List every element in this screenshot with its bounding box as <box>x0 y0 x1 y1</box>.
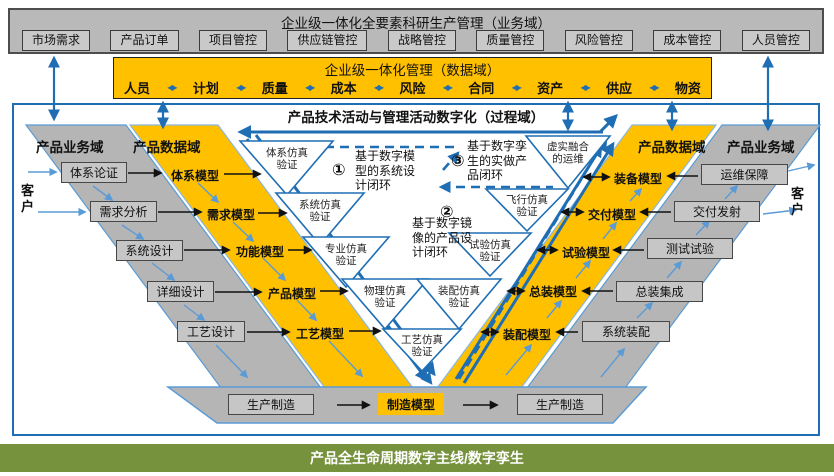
triangle-label-virtual-real-ops: 虚实融合的运维 <box>545 142 591 165</box>
label-equipment-model: 装备模型 <box>612 170 664 187</box>
customer-right: 客户 <box>791 186 806 218</box>
left-data-header: 产品数据域 <box>133 136 201 156</box>
box-final-assembly-integration: 总装集成 <box>616 281 703 302</box>
label-test-model: 试验模型 <box>560 244 612 261</box>
right-business-header: 产品业务域 <box>727 136 795 156</box>
triangle-label-process-sim: 工艺仿真验证 <box>399 335 445 358</box>
box-system-design: 系统设计 <box>116 240 183 261</box>
customer-left: 客户 <box>21 183 36 215</box>
label-product-model: 产品模型 <box>266 285 318 302</box>
box-production-right: 生产制造 <box>517 394 603 415</box>
triangle-label-assembly-sim: 装配仿真验证 <box>436 286 482 309</box>
left-business-header: 产品业务域 <box>36 136 104 156</box>
label-assembly-model: 装配模型 <box>501 326 553 343</box>
label-delivery-model: 交付模型 <box>586 206 638 223</box>
loop-2-text: 基于数字镜像的产品设计闭环 <box>412 216 478 260</box>
label-process-model: 工艺模型 <box>294 325 346 342</box>
box-system-assembly: 系统装配 <box>582 321 670 342</box>
triangle-label-discipline-sim: 专业仿真验证 <box>323 244 369 267</box>
label-requirement-model: 需求模型 <box>205 206 257 223</box>
triangle-label-system-sim: 系统仿真验证 <box>297 200 343 223</box>
diagram-stage: 企业级一体化全要素科研生产管理（业务域） 市场需求 产品订单 项目管控 供应链管… <box>0 0 834 476</box>
label-function-model: 功能模型 <box>234 243 286 260</box>
right-data-header: 产品数据域 <box>638 136 706 156</box>
loop-3-number: ③ <box>451 151 465 171</box>
loop-1-text: 基于数字模型的系统设计闭环 <box>355 149 421 193</box>
label-system-model: 体系模型 <box>169 167 221 184</box>
box-process-design: 工艺设计 <box>177 321 245 342</box>
box-system-demonstration: 体系论证 <box>61 162 127 183</box>
box-delivery-launch: 交付发射 <box>674 201 760 222</box>
box-operation-maintenance: 运维保障 <box>701 164 788 185</box>
box-manufacturing-model: 制造模型 <box>378 393 444 415</box>
triangle-label-physical-sim: 物理仿真验证 <box>362 286 408 309</box>
box-requirement-analysis: 需求分析 <box>90 201 157 222</box>
triangle-label-sos-sim: 体系仿真验证 <box>264 148 310 171</box>
triangle-label-flight-sim: 飞行仿真验证 <box>504 195 550 218</box>
loop-3-text: 基于数字孪生的实做产品闭环 <box>467 139 533 183</box>
box-test-trial: 测试试验 <box>647 238 733 259</box>
label-final-assembly-model: 总装模型 <box>527 283 579 300</box>
box-production-left: 生产制造 <box>228 394 314 415</box>
box-detailed-design: 详细设计 <box>147 281 214 302</box>
process-domain-title: 产品技术活动与管理活动数字化（过程域） <box>12 106 820 126</box>
loop-1-number: ① <box>332 160 346 180</box>
